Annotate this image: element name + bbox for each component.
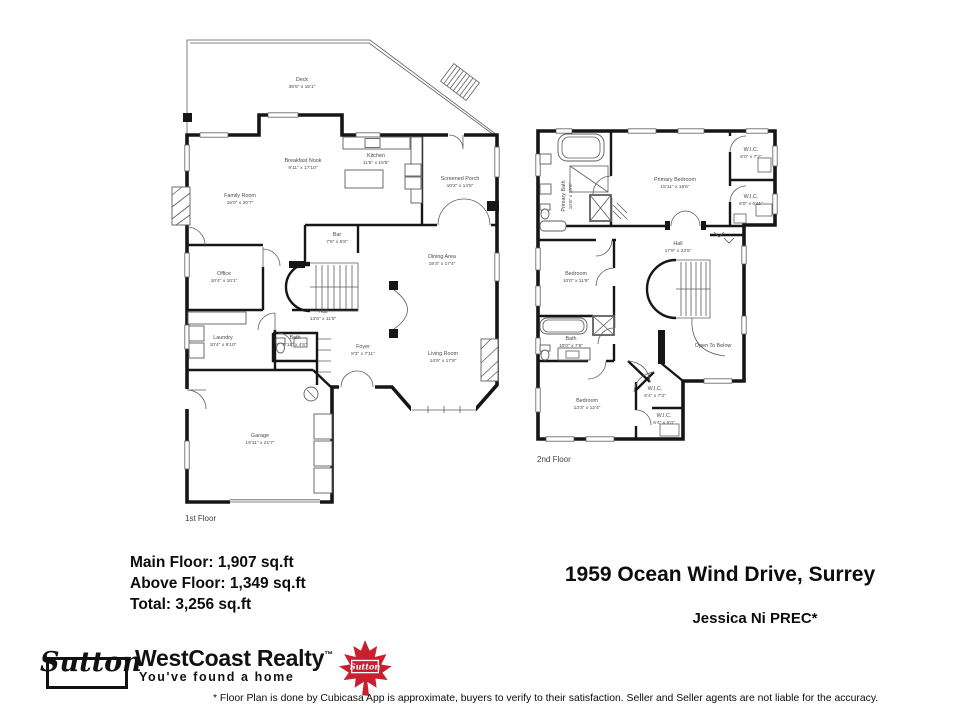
room-dims: 13'6" x 11'5"	[310, 316, 337, 322]
floor2-caption: 2nd Floor	[537, 455, 571, 464]
room-label: Bedroom	[576, 398, 598, 404]
maple-leaf-icon: Sutton	[336, 639, 394, 697]
disclaimer-text: * Floor Plan is done by Cubicasa App is …	[213, 693, 878, 704]
room-label: Family Room	[224, 193, 256, 199]
room-label: Breakfast Nook	[285, 158, 322, 164]
room-dims: 9'11" x 17'10"	[288, 165, 317, 171]
room-label: Screened Porch	[441, 176, 480, 182]
room-dims: 6'4" x 7'3"	[644, 393, 666, 399]
room-label: Bedroom	[565, 271, 587, 277]
listing-address: 1959 Ocean Wind Drive, Surrey	[540, 563, 900, 587]
room-dims: 5'11" x 4'6"	[283, 342, 307, 348]
room-label: W.I.C.	[648, 386, 663, 392]
room-dims: 10'2" x 14'5"	[447, 183, 474, 189]
room-label: Deck	[296, 77, 309, 83]
room-dims: 17'9" x 23'5"	[665, 248, 692, 254]
room-dims: 6'0" x 7'2"	[740, 154, 762, 160]
room-label: Foyer	[356, 344, 370, 350]
leaf-label: Sutton	[350, 662, 381, 672]
chimney-icon	[590, 195, 627, 335]
room-label: Dining Area	[428, 254, 456, 260]
kitchen-counters	[343, 137, 422, 203]
room-dims: 8'3" x 7'11"	[351, 351, 375, 357]
room-label: Primary Bath	[561, 180, 567, 211]
floor1-caption: 1st Floor	[185, 514, 216, 523]
total-area: Total: 3,256 sq.ft	[130, 594, 306, 615]
room-dims: 19'11" x 21'7"	[245, 440, 274, 446]
deck-outline	[183, 40, 497, 135]
windows	[185, 113, 499, 505]
room-label: Open To Below	[695, 343, 732, 349]
room-dims: 11'5" x 15'5"	[363, 160, 390, 166]
room-label: Primary Bedroom	[654, 177, 696, 183]
room-dims: 6'0" x 6'11"	[739, 201, 763, 207]
room-label: Kitchen	[367, 153, 385, 159]
floor-plan-second: Primary Bath 10'8" x 15'6" Primary Bedro…	[528, 118, 798, 453]
columns	[389, 201, 499, 338]
brand-tagline: You've found a home	[139, 670, 294, 684]
room-dims: 15'11" x 16'6"	[660, 184, 689, 190]
room-label: W.I.C.	[744, 194, 759, 200]
garage-storage	[304, 387, 332, 493]
room-label: Hall	[318, 309, 327, 315]
room-dims: 39'5" x 15'1"	[289, 84, 316, 90]
room-dims: 13'3" x 12'4"	[574, 405, 601, 411]
room-dims: 6'4" x 5'0"	[653, 420, 675, 426]
floor-plan-first: Deck 39'5" x 15'1" Breakfast Nook 9'11" …	[160, 25, 520, 510]
main-floor-area: Main Floor: 1,907 sq.ft	[130, 552, 306, 573]
room-label: Bath	[565, 336, 576, 342]
sutton-wordmark: Sutton	[40, 647, 142, 678]
room-dims: 10'4" x 10'1"	[211, 278, 238, 284]
room-label: W.I.C.	[657, 413, 672, 419]
room-dims: 10'0" x 7'6"	[559, 343, 583, 349]
closet-shelves	[318, 339, 331, 372]
room-dims: 10'8" x 15'6"	[568, 182, 574, 209]
room-label: Bath	[289, 335, 300, 341]
room-dims: 10'4" x 9'10"	[210, 342, 237, 348]
room-label: Garage	[251, 433, 269, 439]
room-dims: 19'3" x 17'4"	[429, 261, 456, 267]
room-label: W.I.C.	[744, 147, 759, 153]
above-floor-area: Above Floor: 1,349 sq.ft	[130, 573, 306, 594]
room-label: Hall	[673, 241, 682, 247]
room-label: Bar	[333, 232, 342, 238]
exterior-walls	[187, 115, 497, 502]
room-label: Living Room	[428, 351, 458, 357]
staircase-icon	[286, 261, 358, 311]
room-dims: 10'0" x 11'9"	[563, 278, 590, 284]
room-label: Laundry	[213, 335, 233, 341]
room-dims: 7'5" x 5'8"	[326, 239, 348, 245]
bay-window	[411, 406, 476, 413]
room-dims: 14'9" x 17'8"	[430, 358, 457, 364]
room-label: Office	[217, 271, 231, 277]
floor-area-stats: Main Floor: 1,907 sq.ft Above Floor: 1,3…	[130, 552, 306, 615]
deck-staircase-icon	[441, 64, 480, 101]
trademark-symbol: ™	[324, 649, 333, 659]
agent-name: Jessica Ni PREC*	[555, 610, 955, 627]
company-name: WestCoast Realty™	[135, 645, 333, 672]
company-text: WestCoast Realty	[135, 645, 324, 671]
room-dims: 16'0" x 20'7"	[227, 200, 254, 206]
